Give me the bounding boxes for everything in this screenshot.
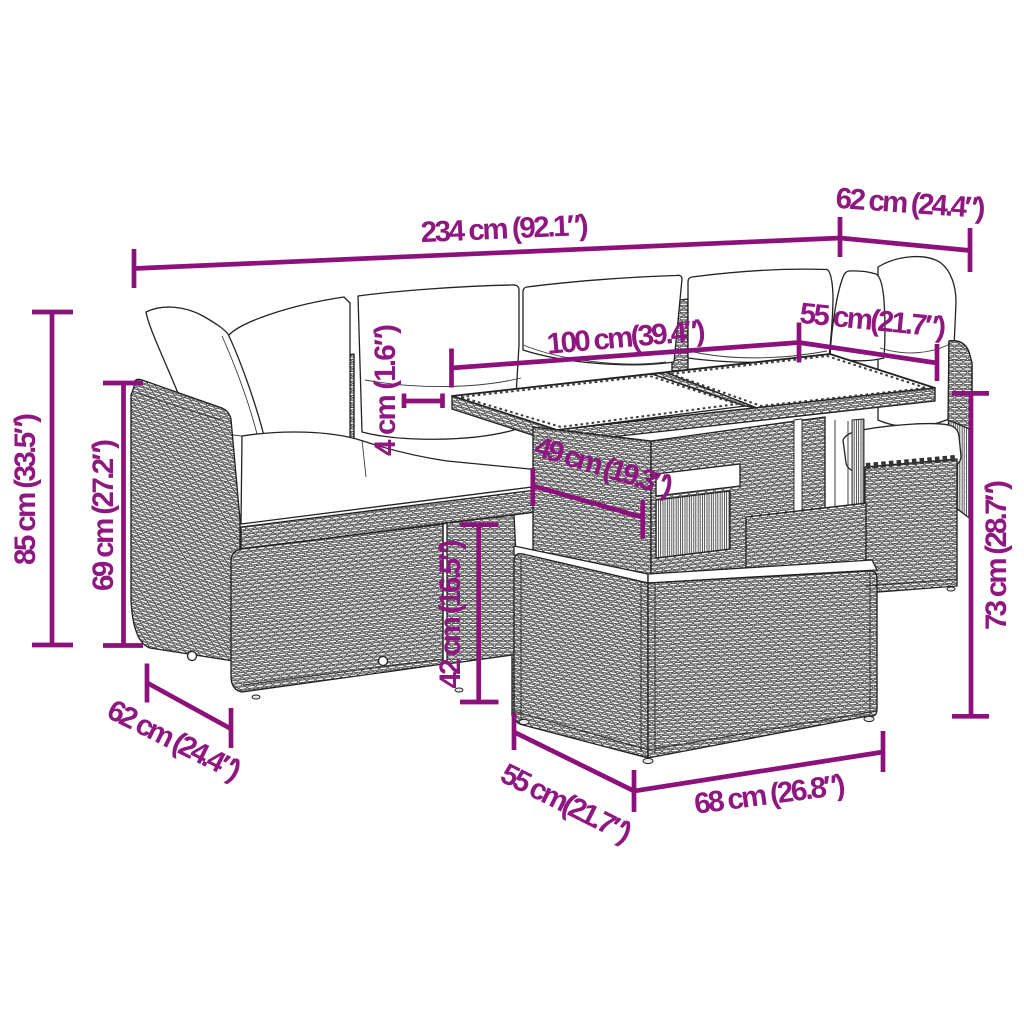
svg-text:73 cm (28.7″): 73 cm (28.7″) [980, 480, 1013, 630]
svg-text:85 cm (33.5″): 85 cm (33.5″) [9, 413, 42, 565]
svg-text:42 cm (16.5″): 42 cm (16.5″) [434, 540, 467, 689]
svg-text:4 cm (1.6″): 4 cm (1.6″) [369, 324, 402, 456]
svg-text:69 cm (27.2″): 69 cm (27.2″) [87, 439, 120, 591]
